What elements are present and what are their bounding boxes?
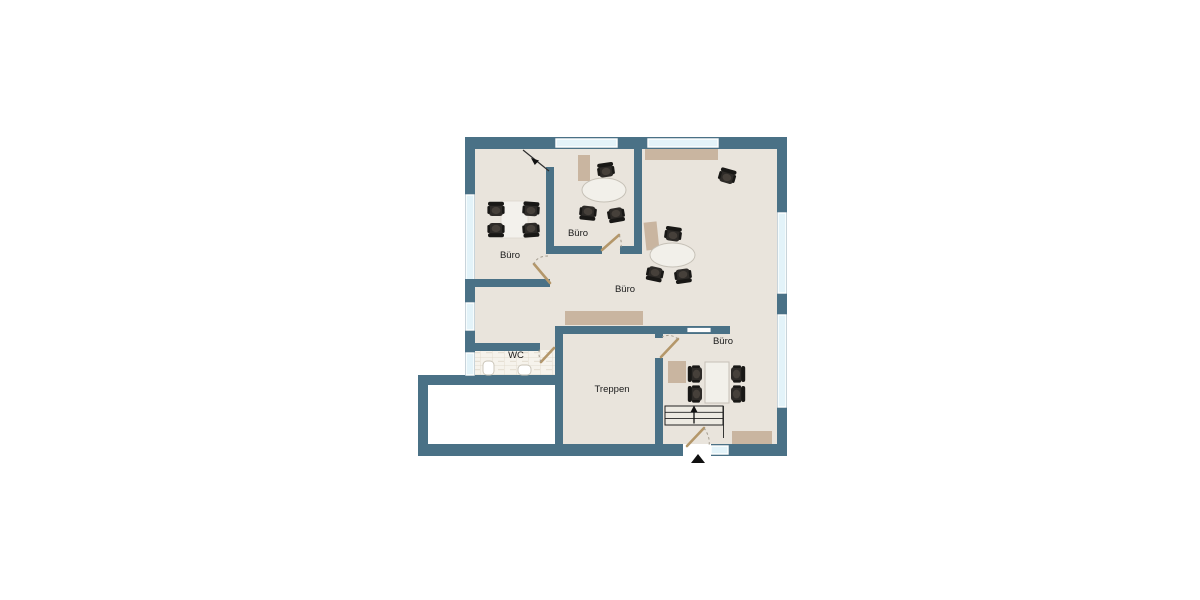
window-left-3 bbox=[466, 353, 474, 375]
rect-table bbox=[705, 362, 729, 403]
room-label-buero-main: Büro bbox=[615, 284, 635, 295]
annex-wall-top bbox=[418, 375, 558, 385]
wall-office2-bottom-a bbox=[546, 246, 602, 254]
floor-plan: Büro Büro Büro Büro WC Treppen bbox=[0, 0, 1200, 600]
wc-toilet-icon bbox=[518, 365, 531, 375]
wall-office1-right bbox=[546, 167, 554, 253]
wall-bottom-left bbox=[418, 444, 683, 456]
office-chair bbox=[487, 202, 504, 216]
office-chair bbox=[579, 205, 598, 221]
wall-treppen-right bbox=[655, 358, 663, 444]
office-chair bbox=[731, 365, 745, 382]
room-label-wc: WC bbox=[508, 350, 524, 361]
room-label-buero-top-left: Büro bbox=[500, 250, 520, 261]
office-chair bbox=[688, 365, 702, 382]
window-right-1 bbox=[778, 213, 786, 293]
cabinet bbox=[668, 361, 686, 383]
floor-plan-page: Büro Büro Büro Büro WC Treppen bbox=[0, 0, 1200, 600]
entrance-arrow-icon bbox=[691, 454, 705, 463]
wall-office2-bottom-b bbox=[620, 246, 642, 254]
window-top-2 bbox=[648, 139, 718, 147]
interior-window bbox=[687, 328, 711, 333]
room-label-buero-bottom-right: Büro bbox=[713, 336, 733, 347]
window-left-2 bbox=[466, 303, 474, 330]
wall-office2-right bbox=[634, 149, 642, 253]
window-bottom bbox=[711, 446, 728, 454]
sideboard bbox=[732, 431, 772, 444]
window-left-1 bbox=[466, 195, 474, 280]
office-chair bbox=[487, 223, 504, 237]
wc-sink-icon bbox=[483, 361, 494, 375]
office-chair bbox=[522, 222, 540, 237]
oval-table bbox=[650, 243, 695, 267]
oval-table bbox=[582, 178, 626, 202]
wall-treppen-right-stub bbox=[655, 326, 663, 338]
wall-office1-bottom bbox=[465, 279, 550, 287]
wall-right bbox=[777, 137, 787, 456]
annex-floor bbox=[428, 385, 555, 444]
office-chair bbox=[688, 385, 702, 402]
window-top-1 bbox=[556, 139, 617, 147]
wall-wc-top bbox=[465, 343, 540, 351]
office-chair bbox=[522, 201, 540, 216]
room-label-buero-top-middle: Büro bbox=[568, 228, 588, 239]
sideboard bbox=[565, 311, 643, 325]
annex-wall-left bbox=[418, 375, 428, 456]
wall-treppen-left bbox=[555, 326, 563, 444]
office-chair bbox=[731, 385, 745, 402]
wall-top bbox=[465, 137, 787, 149]
room-label-treppen: Treppen bbox=[594, 384, 629, 395]
sideboard bbox=[645, 149, 718, 160]
cabinet bbox=[578, 155, 590, 181]
window-right-2 bbox=[778, 315, 786, 407]
